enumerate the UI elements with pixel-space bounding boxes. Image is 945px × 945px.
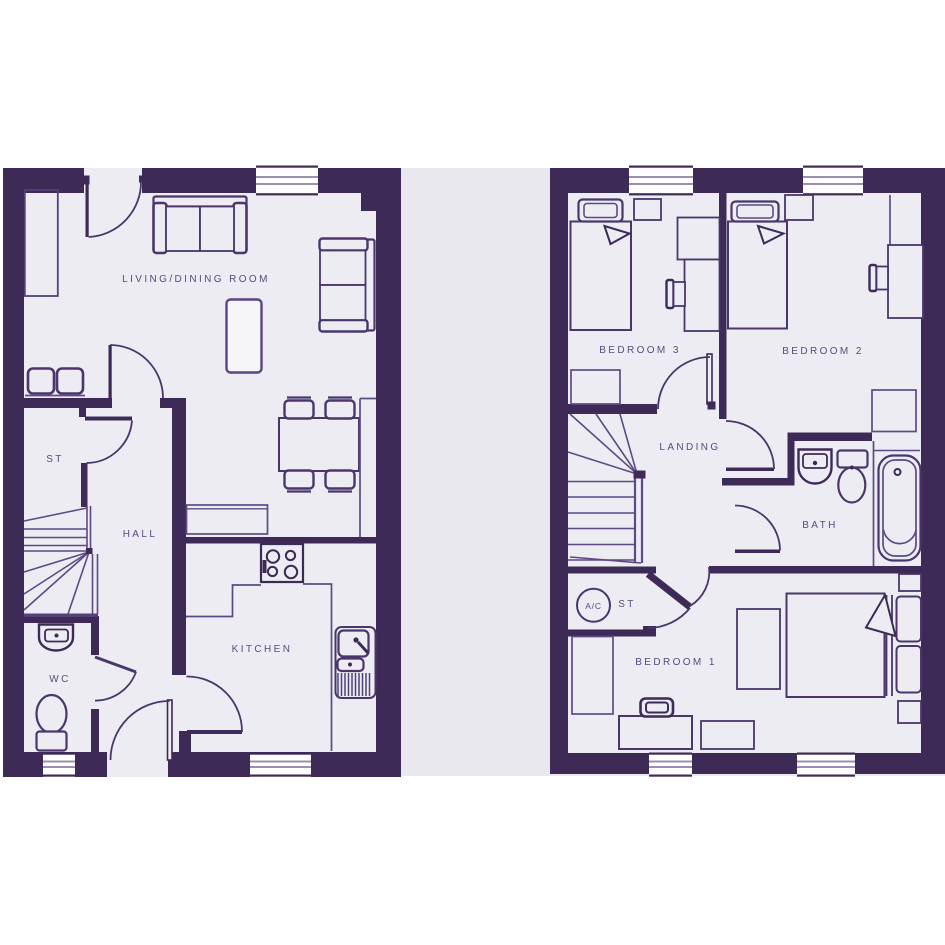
svg-text:BEDROOM 3: BEDROOM 3 [599, 345, 681, 356]
svg-text:LANDING: LANDING [659, 442, 720, 453]
svg-text:WC: WC [49, 674, 70, 685]
svg-text:LIVING/DINING ROOM: LIVING/DINING ROOM [122, 274, 270, 285]
svg-text:A/C: A/C [585, 601, 602, 611]
svg-text:BATH: BATH [802, 520, 838, 531]
svg-text:ST: ST [618, 599, 636, 610]
svg-text:BEDROOM 1: BEDROOM 1 [635, 657, 717, 668]
svg-text:HALL: HALL [123, 529, 158, 540]
svg-text:BEDROOM 2: BEDROOM 2 [782, 346, 864, 357]
svg-text:KITCHEN: KITCHEN [232, 644, 293, 655]
svg-text:ST: ST [46, 454, 64, 465]
